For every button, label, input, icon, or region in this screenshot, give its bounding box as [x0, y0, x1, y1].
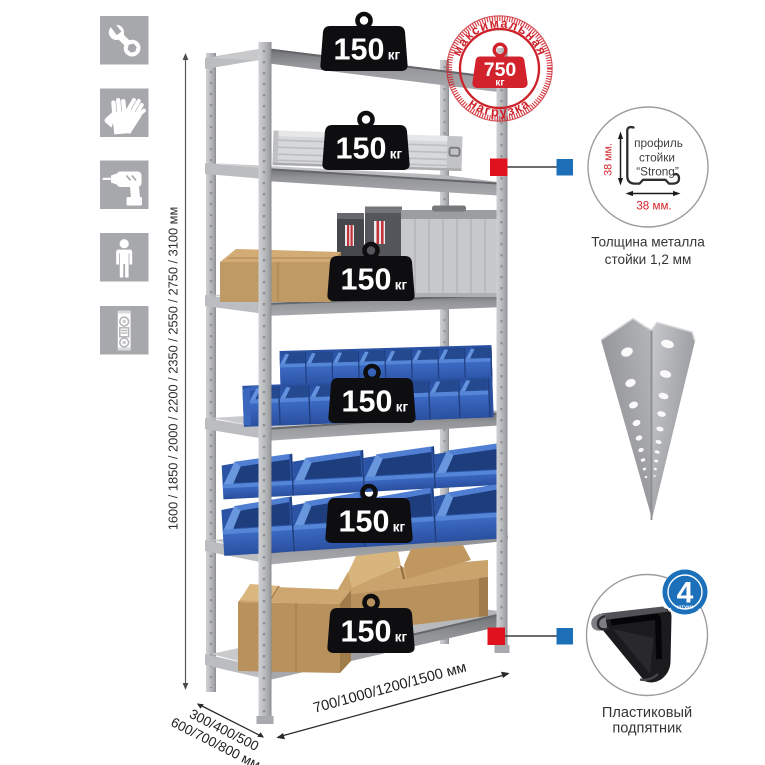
- svg-text:профиль: профиль: [634, 136, 683, 150]
- svg-text:кг: кг: [495, 78, 504, 89]
- svg-text:стойки 1,2 мм: стойки 1,2 мм: [605, 252, 692, 267]
- svg-text:штуки: штуки: [677, 605, 693, 611]
- svg-text:1600 / 1850 / 2000 / 2200 / 23: 1600 / 1850 / 2000 / 2200 / 2350 / 2550 …: [166, 207, 181, 531]
- svg-text:“Strong”: “Strong”: [636, 165, 679, 179]
- svg-text:Толщина металла: Толщина металла: [591, 235, 705, 250]
- svg-text:38 мм.: 38 мм.: [603, 143, 615, 176]
- svg-text:Пластиковый: Пластиковый: [602, 705, 692, 721]
- svg-text:подпятник: подпятник: [612, 721, 682, 737]
- svg-text:стойки: стойки: [639, 151, 675, 165]
- svg-text:38 мм.: 38 мм.: [636, 200, 671, 213]
